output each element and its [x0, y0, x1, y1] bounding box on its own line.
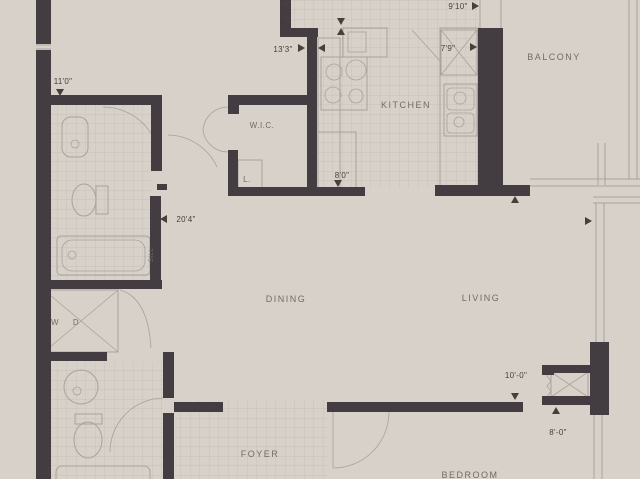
- room-label-balcony: BALCONY: [527, 52, 581, 62]
- room-label-bedroom: BEDROOM: [441, 470, 498, 479]
- wall: [307, 28, 317, 190]
- floor-plan: KITCHEN BALCONY W.I.C. L. DINING LIVING …: [0, 0, 640, 479]
- dim-balcony-width: 9'10": [448, 2, 467, 11]
- wall: [228, 187, 365, 196]
- dim-kitchen-width: 8'0": [335, 171, 349, 180]
- wall: [36, 50, 51, 479]
- wall: [36, 280, 162, 289]
- dim-arrow-up: [552, 407, 560, 414]
- wic-door-arc: [203, 107, 228, 130]
- dim-arrow-right: [298, 44, 305, 52]
- closet-bifold-door: [547, 372, 551, 397]
- wic-door-arc: [203, 130, 228, 152]
- dim-arrow-right: [585, 217, 592, 225]
- hall-door-arc: [168, 135, 217, 167]
- dim-arrow-left: [160, 215, 167, 223]
- bedroom-door-arc: [333, 412, 389, 468]
- floor-plan-svg: KITCHEN BALCONY W.I.C. L. DINING LIVING …: [0, 0, 640, 479]
- dim-arrow-down: [56, 89, 64, 96]
- room-label-linen: L.: [243, 175, 251, 184]
- wall: [163, 352, 174, 398]
- wall: [40, 95, 162, 105]
- room-label-dining: DINING: [266, 294, 307, 304]
- wall: [36, 0, 51, 44]
- dim-arrow-down: [511, 393, 519, 400]
- dim-kitchen-length: 13'3": [273, 45, 292, 54]
- room-label-foyer: FOYER: [241, 449, 280, 459]
- wall: [174, 402, 223, 412]
- dim-bedroom-depth: 8'-0": [549, 428, 566, 437]
- dim-bath-width: 11'0": [54, 77, 73, 86]
- room-label-living: LIVING: [462, 293, 501, 303]
- wall: [151, 100, 162, 171]
- wall: [327, 402, 523, 412]
- dim-kitchen-upper: 7'9": [441, 44, 455, 53]
- wall: [590, 342, 609, 415]
- wall: [542, 396, 592, 405]
- washer-label: W: [51, 318, 59, 327]
- sill-label: SILL: [149, 248, 155, 263]
- dim-arrow-up: [511, 196, 519, 203]
- wall: [163, 413, 174, 479]
- dim-bedroom-width: 10'-0": [505, 371, 527, 380]
- wall: [42, 352, 107, 361]
- bathroom2-floor: [51, 362, 163, 479]
- dim-great-room-length: 20'4": [176, 215, 195, 224]
- laundry-door-arc: [120, 290, 151, 348]
- wall: [228, 95, 239, 114]
- door-stop: [157, 184, 167, 190]
- wall: [478, 28, 503, 188]
- wall: [552, 365, 590, 373]
- bathroom1-floor: [51, 100, 151, 281]
- room-label-wic: W.I.C.: [250, 121, 275, 130]
- wall: [150, 196, 161, 288]
- dryer-label: D: [73, 318, 79, 327]
- wall: [228, 95, 310, 105]
- room-label-kitchen: KITCHEN: [381, 100, 431, 110]
